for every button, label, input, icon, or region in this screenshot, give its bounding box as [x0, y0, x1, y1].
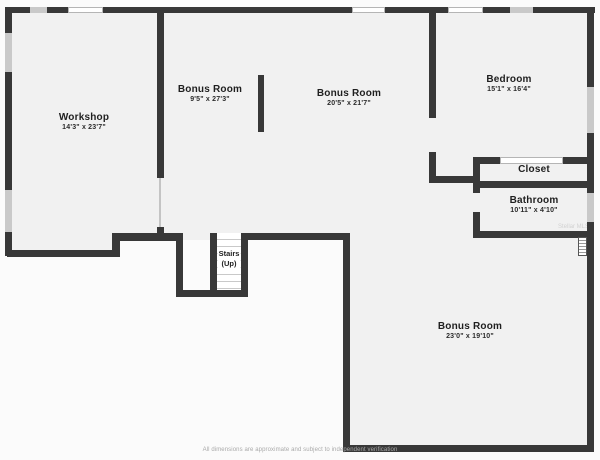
- stair-fixture: [578, 237, 587, 256]
- room-label-closet: Closet: [518, 164, 550, 175]
- window-top-4: [448, 7, 483, 13]
- window-top-3: [352, 7, 385, 13]
- room-name: Bonus Room: [317, 88, 381, 99]
- room-label-bonus-bottom: Bonus Room 23'0" x 19'10": [438, 321, 502, 341]
- room-name: Closet: [518, 164, 550, 175]
- wall-alcove-left: [176, 233, 183, 297]
- wall-bonus-stub: [258, 75, 264, 132]
- wall-divider-nub: [157, 227, 164, 236]
- disclaimer-text: All dimensions are approximate and subje…: [203, 447, 398, 453]
- wall-stairs-left: [210, 233, 217, 297]
- closet-door-opening: [500, 157, 563, 164]
- room-name: Bedroom: [486, 74, 531, 85]
- stairs-label-line2: (Up): [219, 259, 240, 269]
- room-name: Bonus Room: [438, 321, 502, 332]
- window-top-5: [510, 7, 533, 13]
- window-top-2: [68, 7, 103, 13]
- room-label-bonus-top: Bonus Room 9'5" x 27'3": [178, 84, 242, 104]
- stairs-label-line1: Stairs: [219, 249, 240, 259]
- wall-opening-line: [159, 178, 161, 228]
- room-name: Workshop: [59, 112, 109, 123]
- wall-mid-south: [112, 233, 183, 241]
- wall-bonus-bottom-left: [343, 233, 350, 452]
- stairs-label: Stairs (Up): [218, 249, 241, 269]
- room-dims: 15'1" x 16'4": [486, 85, 531, 94]
- watermark: Stellar MLS: [558, 224, 589, 230]
- wall-closet-south: [473, 181, 594, 188]
- floor-plan: Workshop 14'3" x 23'7" Bonus Room 9'5" x…: [0, 0, 600, 460]
- room-name: Bathroom: [510, 195, 559, 206]
- room-label-workshop: Workshop 14'3" x 23'7": [59, 112, 109, 132]
- room-label-bonus-mid: Bonus Room 20'5" x 21'7": [317, 88, 381, 108]
- room-dims: 9'5" x 27'3": [178, 95, 242, 104]
- wall-stairs-bottom: [210, 290, 248, 297]
- wall-workshop-bottom: [7, 250, 119, 257]
- window-left-2: [5, 190, 12, 232]
- room-name: Bonus Room: [178, 84, 242, 95]
- wall-bathroom-left-upper: [473, 181, 480, 193]
- room-dims: 23'0" x 19'10": [438, 332, 502, 341]
- room-label-bedroom: Bedroom 15'1" x 16'4": [486, 74, 531, 94]
- window-left-1: [5, 33, 12, 72]
- window-right-bathroom: [587, 193, 594, 222]
- wall-bathroom-south: [473, 231, 594, 238]
- room-dims: 10'11" x 4'10": [510, 206, 559, 215]
- window-right-bedroom: [587, 87, 594, 133]
- wall-bedroom-left-upper: [429, 7, 436, 118]
- room-dims: 14'3" x 23'7": [59, 123, 109, 132]
- window-top-1: [30, 7, 47, 13]
- wall-stairs-right: [241, 233, 248, 297]
- wall-workshop-divider: [157, 7, 164, 178]
- room-label-bathroom: Bathroom 10'11" x 4'10": [510, 195, 559, 215]
- room-dims: 20'5" x 21'7": [317, 99, 381, 108]
- wall-notch-top: [241, 233, 350, 240]
